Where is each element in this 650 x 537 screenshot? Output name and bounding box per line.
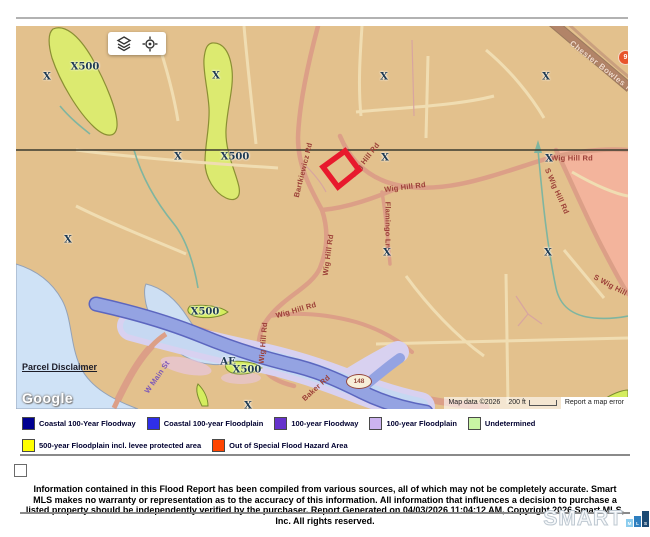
map-attribution: Map data ©2026 200 ft Report a map error bbox=[444, 397, 628, 409]
zone-label-x: X bbox=[545, 154, 553, 165]
zone-label-x: X bbox=[383, 248, 391, 259]
google-logo[interactable]: Google bbox=[22, 390, 73, 406]
smart-wordmark: SMART bbox=[543, 509, 623, 529]
disclaimer-text: Information contained in this Flood Repo… bbox=[25, 484, 625, 526]
legend-swatch bbox=[22, 417, 35, 430]
zone-label-x: X bbox=[544, 248, 552, 259]
legend-swatch bbox=[274, 417, 287, 430]
zone-label-x: X bbox=[542, 72, 550, 83]
legend-label: 100-year Floodplain bbox=[386, 419, 456, 428]
map-data-copyright: Map data ©2026 bbox=[444, 397, 504, 409]
zone-label-x: X bbox=[43, 72, 51, 83]
legend-row: 500-year Floodplain incl. levee protecte… bbox=[16, 434, 636, 456]
zone-label-x500: X500 bbox=[191, 307, 220, 318]
flood-map[interactable]: X500XXXXXX500XXXXXX500AEX500X Bartkiewic… bbox=[16, 26, 628, 409]
zone-label-x: X bbox=[381, 153, 389, 164]
mls-squares-icon: MLS bbox=[626, 511, 649, 529]
map-canvas bbox=[16, 26, 628, 409]
legend-label: Coastal 100-Year Floodway bbox=[39, 419, 136, 428]
legend-label: Undetermined bbox=[485, 419, 535, 428]
legend-label: Coastal 100-year Floodplain bbox=[164, 419, 264, 428]
layers-icon bbox=[116, 36, 132, 52]
road-label: Wig Hill Rd bbox=[551, 154, 593, 163]
layers-button[interactable] bbox=[114, 34, 134, 54]
legend-item: Undetermined bbox=[468, 417, 535, 430]
legend-divider bbox=[20, 454, 630, 456]
zone-label-x500: X500 bbox=[233, 365, 262, 376]
mls-square-l: L bbox=[634, 516, 641, 527]
legend-label: 100-year Floodway bbox=[291, 419, 358, 428]
map-controls bbox=[108, 32, 166, 55]
legend-item: Coastal 100-Year Floodway bbox=[22, 417, 136, 430]
zone-label-x: X bbox=[244, 401, 252, 410]
zone-label-x: X bbox=[174, 152, 182, 163]
report-map-error-link[interactable]: Report a map error bbox=[561, 397, 628, 409]
zone-label-x: X bbox=[64, 235, 72, 246]
road-label: Flamingo Ln bbox=[384, 202, 393, 249]
zone-label-x500: X500 bbox=[221, 152, 250, 163]
legend-swatch bbox=[369, 417, 382, 430]
legend-item: Out of Special Flood Hazard Area bbox=[212, 439, 348, 452]
legend-item: Coastal 100-year Floodplain bbox=[147, 417, 264, 430]
legend-row: Coastal 100-Year FloodwayCoastal 100-yea… bbox=[16, 412, 636, 434]
my-location-button[interactable] bbox=[140, 34, 160, 54]
mls-square-s: S bbox=[642, 511, 649, 527]
legend-swatch bbox=[468, 417, 481, 430]
smart-mls-logo: SMART MLS bbox=[543, 509, 649, 529]
zone-label-x: X bbox=[380, 72, 388, 83]
legend-swatch bbox=[22, 439, 35, 452]
scale-label: 200 ft bbox=[508, 397, 526, 409]
top-divider bbox=[16, 17, 628, 19]
footer-divider bbox=[20, 512, 630, 514]
zone-label-x500: X500 bbox=[71, 62, 100, 73]
scale-bar bbox=[529, 400, 557, 406]
route-148-shield: 148 bbox=[346, 374, 372, 389]
flood-legend: Coastal 100-Year FloodwayCoastal 100-yea… bbox=[16, 412, 636, 456]
map-scale: 200 ft bbox=[504, 397, 561, 409]
parcel-disclaimer-link[interactable]: Parcel Disclaimer bbox=[22, 362, 97, 372]
crosshair-icon bbox=[142, 36, 158, 52]
route-9-shield: 9 bbox=[618, 50, 628, 65]
legend-label: Out of Special Flood Hazard Area bbox=[229, 441, 348, 450]
legend-item: 100-year Floodplain bbox=[369, 417, 456, 430]
legend-swatch bbox=[147, 417, 160, 430]
acknowledge-checkbox[interactable] bbox=[14, 464, 27, 477]
mls-square-m: M bbox=[626, 519, 633, 527]
zone-label-x: X bbox=[212, 71, 220, 82]
legend-item: 100-year Floodway bbox=[274, 417, 358, 430]
legend-swatch bbox=[212, 439, 225, 452]
legend-label: 500-year Floodplain incl. levee protecte… bbox=[39, 441, 201, 450]
legend-item: 500-year Floodplain incl. levee protecte… bbox=[22, 439, 201, 452]
